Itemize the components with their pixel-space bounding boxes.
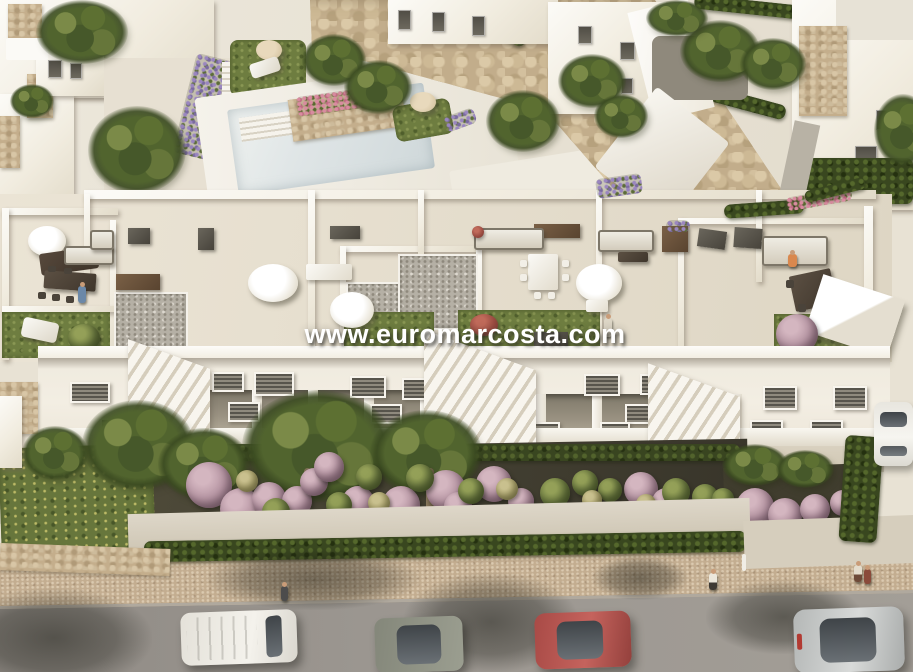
- palm-tree: [22, 426, 88, 480]
- chair: [52, 294, 60, 301]
- grass-tuft: [496, 478, 518, 500]
- table: [306, 264, 352, 280]
- dining-table: [528, 254, 558, 290]
- lounger: [697, 228, 727, 250]
- palm-tree: [10, 84, 54, 118]
- parasol: [248, 264, 298, 302]
- van-windshield: [265, 615, 282, 658]
- ac-unit: [198, 228, 214, 250]
- window: [48, 60, 62, 78]
- tree-shadow: [206, 548, 420, 610]
- chair: [48, 266, 56, 272]
- parasol: [410, 92, 436, 112]
- roof-plane: [836, 0, 913, 40]
- parapet: [340, 246, 482, 252]
- person: [864, 569, 871, 584]
- chair: [66, 296, 74, 303]
- vehicle-olive-car: [374, 615, 464, 672]
- watermark-text: www.euromarcosta.com: [304, 320, 625, 350]
- walkway: [743, 515, 913, 569]
- chair: [64, 268, 72, 274]
- window: [833, 386, 867, 410]
- palm-tree: [646, 0, 708, 36]
- vehicle-silver-car: [793, 606, 905, 672]
- person: [788, 254, 797, 267]
- tree-shadow: [592, 556, 688, 600]
- vehicle-parked-white-car: [874, 402, 913, 466]
- sofa: [598, 230, 654, 252]
- storage-box: [116, 274, 160, 290]
- armchair: [90, 230, 114, 250]
- bollard: [742, 554, 746, 571]
- palm-tree: [594, 94, 648, 138]
- shrub: [458, 478, 484, 504]
- stone-facade: [0, 116, 20, 168]
- parasol: [576, 264, 622, 302]
- window: [472, 16, 485, 36]
- person: [854, 565, 862, 582]
- planter: [472, 226, 484, 238]
- chair: [562, 274, 569, 281]
- ac-unit: [330, 226, 360, 239]
- window: [350, 376, 386, 398]
- palm-tree: [36, 0, 128, 64]
- lounger: [733, 227, 762, 249]
- vehicle-red-car: [534, 610, 632, 669]
- window: [254, 372, 294, 396]
- window: [578, 26, 592, 44]
- aerial-render-scene: www.euromarcosta.com: [0, 0, 913, 672]
- car-glass-roof: [819, 617, 877, 663]
- chair: [520, 274, 527, 281]
- planter-flowers: [666, 220, 690, 232]
- sofa: [474, 228, 544, 250]
- chair: [38, 292, 46, 299]
- chair: [548, 292, 555, 299]
- window: [398, 10, 411, 30]
- parapet: [418, 190, 424, 260]
- window: [70, 63, 82, 79]
- palm-tree: [486, 90, 560, 152]
- stone-facade: [799, 26, 847, 116]
- shrub: [356, 464, 382, 490]
- tropical-plants: [776, 450, 834, 488]
- van-roof-ridges: [186, 615, 257, 660]
- parapet: [2, 208, 118, 215]
- car-rear-window: [880, 446, 907, 456]
- chair: [520, 260, 527, 267]
- palm-tree: [344, 60, 412, 114]
- car-glass-roof: [556, 620, 603, 660]
- coffee-table: [618, 252, 648, 262]
- chair: [562, 260, 569, 267]
- person: [78, 286, 86, 303]
- window: [584, 374, 620, 396]
- window: [620, 42, 635, 60]
- ac-unit: [128, 228, 150, 244]
- parapet: [678, 218, 870, 224]
- side-table: [586, 300, 608, 312]
- chair: [798, 304, 806, 312]
- window: [432, 12, 445, 32]
- chair: [534, 292, 541, 299]
- car-windshield: [880, 412, 907, 427]
- grass-tuft: [236, 470, 258, 492]
- palm-tree: [88, 106, 186, 194]
- flower-shrub: [314, 452, 344, 482]
- palm-tree: [740, 38, 806, 90]
- person: [281, 586, 288, 601]
- window: [212, 372, 244, 392]
- window: [70, 382, 110, 403]
- window: [763, 386, 797, 410]
- shrub: [406, 464, 434, 492]
- tree-shadow: [0, 588, 152, 672]
- chair: [786, 280, 794, 288]
- car-taillight: [797, 634, 803, 650]
- person: [709, 573, 717, 590]
- vehicle-white-van: [180, 609, 298, 666]
- car-glass-roof: [396, 624, 441, 665]
- wall: [0, 396, 22, 468]
